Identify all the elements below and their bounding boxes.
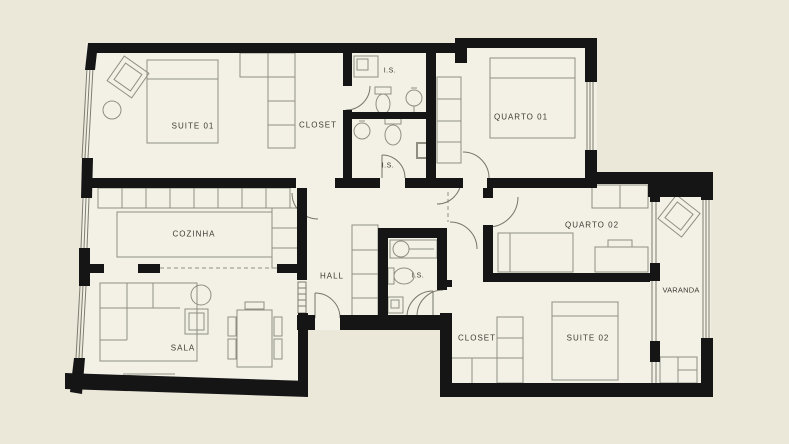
- wall-step-right: [585, 172, 713, 184]
- room-label-varanda: VARANDA: [662, 286, 699, 295]
- wall-coz-sala-a: [84, 264, 104, 273]
- wall-band-a: [297, 315, 315, 330]
- room-label-is-2: I.S.: [382, 163, 395, 170]
- room-label-is-3: I.S.: [412, 273, 425, 280]
- wall-top-stub: [455, 38, 467, 63]
- wall-top-left: [92, 43, 463, 53]
- wall-is-quarto01: [426, 53, 436, 180]
- wall-varanda-part-c: [650, 341, 660, 362]
- wall-bottom-right: [440, 383, 713, 397]
- wall-is3-top: [378, 228, 447, 238]
- wall-quarto02-bottom: [483, 273, 650, 282]
- wall-mid-a: [92, 178, 296, 188]
- room-label-sala: SALA: [171, 344, 195, 353]
- wall-coz-sala-b: [138, 264, 160, 273]
- wall-quarto02-left-a: [483, 188, 493, 198]
- room-label-cozinha: COZINHA: [173, 230, 216, 239]
- room-label-closet-suite-02: CLOSET: [458, 334, 496, 343]
- floor-plan-image: SUITE 01 CLOSET I.S. QUARTO 01 I.S. COZI…: [0, 0, 789, 444]
- room-label-quarto-02: QUARTO 02: [565, 221, 619, 230]
- room-label-hall: HALL: [320, 272, 344, 281]
- wall-closet-is1-b: [343, 110, 352, 180]
- wall-top-right: [455, 38, 597, 48]
- wall-varanda-part-b: [650, 263, 660, 281]
- wall-left-block: [81, 158, 93, 198]
- room-label-suite-01: SUITE 01: [172, 122, 215, 131]
- room-label-closet-suite-01: CLOSET: [299, 121, 337, 130]
- wall-is3-left: [378, 228, 388, 320]
- wall-quarto02-left-b: [483, 225, 493, 273]
- wall-varanda-right-top: [701, 172, 713, 200]
- wall-closet02-left-b: [440, 313, 452, 397]
- wall-right-top: [585, 38, 597, 82]
- wall-closet02-left-a: [440, 280, 452, 287]
- wall-is-divider: [343, 112, 434, 119]
- wall-mid-b: [335, 178, 380, 188]
- wall-varanda-part-a: [650, 184, 660, 202]
- wall-band-b: [340, 315, 452, 330]
- room-label-quarto-01: QUARTO 01: [494, 113, 548, 122]
- wall-mid-c: [405, 178, 463, 188]
- wall-closet-is1-a: [343, 53, 352, 86]
- room-label-suite-02: SUITE 02: [567, 334, 610, 343]
- floor-area: [82, 43, 711, 392]
- wall-mid-d: [487, 178, 597, 188]
- room-label-is-1: I.S.: [384, 68, 397, 75]
- wall-coz-sala-c: [277, 264, 307, 273]
